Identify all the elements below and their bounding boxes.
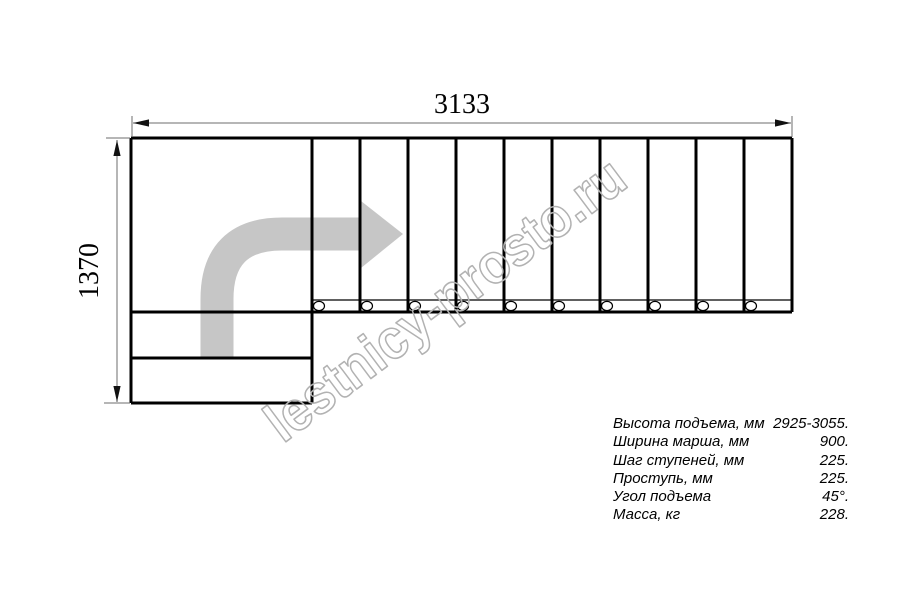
route-arrow-head (361, 201, 403, 268)
spec-row: Высота подъема, мм 2925-3055. (613, 415, 849, 433)
spec-label: Масса, кг (613, 506, 680, 524)
dimension-arrowhead (113, 140, 120, 156)
spec-table: Высота подъема, мм 2925-3055. Ширина мар… (613, 415, 849, 525)
spec-row: Проступь, мм 225. (613, 470, 849, 488)
dimension-arrowhead (113, 386, 120, 402)
spec-row: Масса, кг 228. (613, 506, 849, 524)
spec-row: Шаг ступеней, мм 225. (613, 452, 849, 470)
dimension-arrowhead (775, 119, 791, 126)
width-dimension: 3133 (132, 89, 792, 137)
spec-row: Ширина марша, мм 900. (613, 433, 849, 451)
dimension-arrowhead (133, 119, 149, 126)
watermark-text: lestnicy-prosto.ru (253, 144, 638, 453)
width-dimension-label: 3133 (434, 89, 490, 120)
height-dimension-label: 1370 (74, 243, 105, 299)
spec-value: 2925-3055. (773, 415, 849, 433)
spec-label: Проступь, мм (613, 470, 713, 488)
baluster-circle (698, 301, 709, 310)
spec-value: 45°. (822, 488, 849, 506)
height-dimension: 1370 (74, 138, 130, 403)
baluster-circle (314, 301, 325, 310)
baluster-circle (746, 301, 757, 310)
baluster-circle (506, 301, 517, 310)
baluster-circle (554, 301, 565, 310)
spec-label: Высота подъема, мм (613, 415, 765, 433)
spec-label: Угол подъема (613, 488, 711, 506)
staircase-plan-canvas: 3133 1370 lestnicy-prosto.ru Высота подъ… (0, 0, 900, 600)
baluster-circle (362, 301, 373, 310)
spec-label: Шаг ступеней, мм (613, 452, 744, 470)
spec-value: 900. (820, 433, 849, 451)
baluster-circle (602, 301, 613, 310)
baluster-circle (650, 301, 661, 310)
spec-value: 225. (820, 470, 849, 488)
spec-label: Ширина марша, мм (613, 433, 749, 451)
spec-value: 225. (820, 452, 849, 470)
spec-value: 228. (820, 506, 849, 524)
spec-row: Угол подъема 45°. (613, 488, 849, 506)
